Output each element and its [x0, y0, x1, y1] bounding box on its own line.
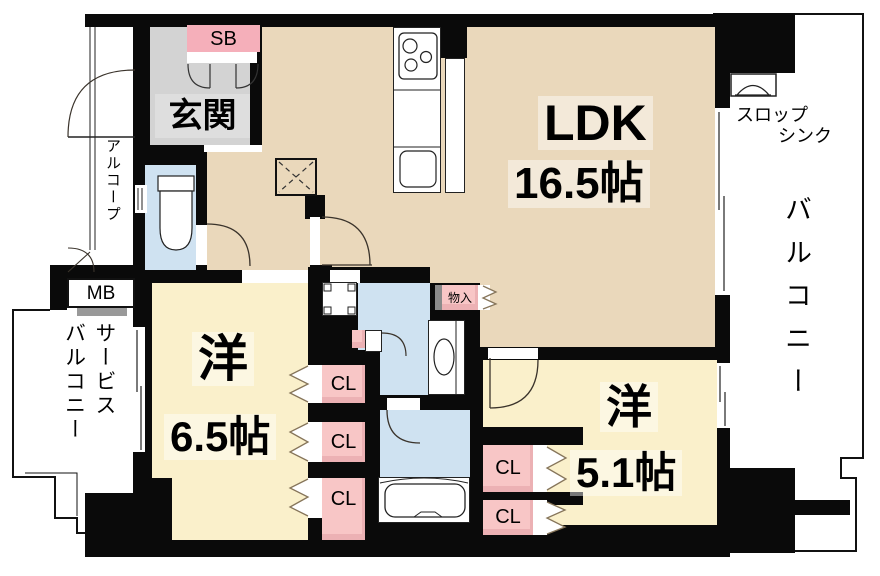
slop-sink-label: スロップシンク	[736, 106, 832, 145]
bifold-door-icon	[290, 366, 308, 402]
closet-text: CL	[495, 457, 521, 480]
washer-corner	[348, 284, 355, 291]
shoebox-label: SB	[187, 25, 260, 52]
kitchen-sink-icon	[400, 151, 436, 187]
meterbox-label: MB	[70, 280, 132, 306]
closet-box: CL	[322, 478, 365, 540]
alcove-label: アルコープ	[105, 138, 120, 243]
slop-sink-line2: シンク	[778, 127, 832, 145]
toilet-door-arc	[207, 224, 250, 266]
bedroom-51-area: 5.1帖	[570, 450, 682, 496]
closet-box: CL	[483, 500, 533, 535]
closet-text: CL	[331, 488, 357, 511]
entrance-label: 玄関	[155, 94, 250, 138]
closet-text: CL	[495, 506, 521, 529]
toilet-icon	[160, 191, 192, 250]
closet-box: CL	[322, 422, 365, 462]
slop-sink-line1: スロップ	[736, 106, 832, 124]
bifold-door-icon	[483, 286, 496, 309]
front-door-arc	[68, 70, 135, 137]
entrance-text: 玄関	[169, 99, 237, 133]
bedroom-51-door-arc	[490, 358, 538, 408]
washer-corner	[324, 307, 331, 314]
bifold-door-icon	[547, 447, 566, 490]
bath-counter-line	[380, 478, 468, 483]
window-glyph	[719, 112, 724, 291]
service-balcony-line1: サービス	[88, 322, 118, 492]
floorplan-canvas: SB CL CL CL CL CL 物入	[0, 0, 880, 576]
bifold-door-icon	[290, 423, 308, 461]
bifold-door-icon	[290, 479, 308, 516]
pillar-cross	[279, 162, 313, 192]
washer-corner	[324, 284, 331, 291]
storage-text: 物入	[448, 289, 472, 306]
bathroom-door-arc	[387, 410, 420, 443]
washbasin-icon	[434, 339, 454, 375]
bedroom-65-area: 6.5帖	[164, 414, 276, 460]
bedroom-65-name: 洋	[192, 332, 254, 386]
window-glyph	[137, 330, 141, 450]
shoebox-text: SB	[210, 29, 237, 49]
bedroom-51-name: 洋	[600, 382, 658, 432]
storage-box: 物入	[442, 285, 478, 310]
closet-box: CL	[483, 445, 533, 492]
ldk-area: 16.5帖	[508, 160, 650, 208]
meterbox-door-arc	[68, 248, 94, 272]
toilet-tank	[158, 176, 194, 191]
balcony-label: バルコニー	[782, 195, 809, 455]
washer-corner	[348, 307, 355, 314]
window-glyph	[138, 188, 142, 210]
closet-text: CL	[331, 431, 357, 454]
alcove-outline	[90, 27, 95, 250]
service-balcony-line2: バルコニー	[58, 322, 88, 492]
washroom-door-arc	[382, 333, 406, 356]
ldk-name: LDK	[538, 96, 653, 150]
ldk-door-arc	[322, 217, 372, 265]
kitchen-divider	[394, 90, 440, 147]
closet-text: CL	[331, 373, 357, 396]
shoebox-door-arcs	[188, 64, 258, 88]
bifold-door-icon	[547, 502, 565, 534]
plan-lines-layer	[0, 0, 880, 576]
service-balcony-label: サービスバルコニー	[58, 322, 119, 492]
closet-box: CL	[322, 365, 365, 403]
window-glyph	[720, 366, 725, 426]
